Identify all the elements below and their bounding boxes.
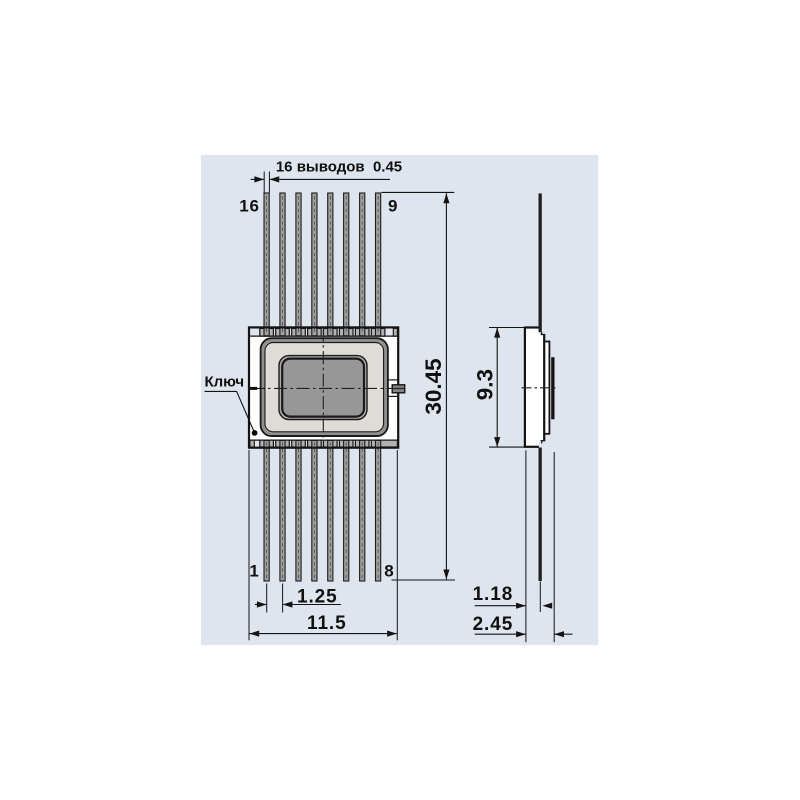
svg-text:9.3: 9.3 (472, 369, 497, 400)
svg-text:16: 16 (239, 197, 260, 216)
svg-text:16 выводов 0.45: 16 выводов 0.45 (276, 158, 402, 175)
svg-text:30.45: 30.45 (421, 358, 446, 414)
svg-text:8: 8 (384, 562, 393, 581)
svg-text:Ключ: Ключ (205, 374, 245, 391)
svg-text:1: 1 (249, 562, 258, 581)
svg-text:2.45: 2.45 (473, 614, 514, 635)
svg-text:11.5: 11.5 (307, 613, 347, 634)
svg-text:9: 9 (388, 197, 397, 216)
svg-text:1.25: 1.25 (297, 586, 338, 607)
svg-text:1.18: 1.18 (473, 584, 514, 605)
